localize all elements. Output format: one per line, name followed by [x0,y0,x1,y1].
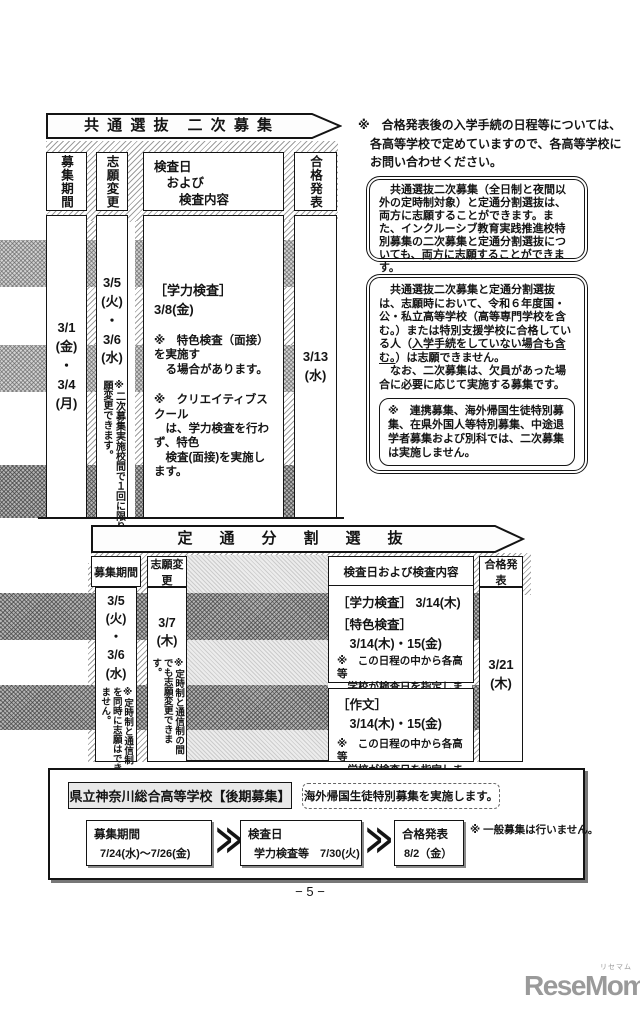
table1-header-recruit-period: 募集期間 [46,152,87,211]
document-page: 共 通 選 抜 二 次 募 集 募集期間 志願変更 検査日 および 検査内容 合… [0,0,640,1016]
flow-recruit-period-label: 募集期間 [94,826,204,842]
timeline-band-left [0,345,46,392]
note-box-dual-application-text: 共通選抜二次募集（全日制と夜間以外の定時制対象）と定通分割選抜は、両方に志願する… [379,184,575,275]
table2-middle-area [187,555,328,762]
kanagawa-sogo-box: 県立神奈川総合高等学校【後期募集】 海外帰国生徒特別募集を実施します。 募集期間… [48,768,585,880]
timeline-band-segment [135,465,143,518]
table2-application-change-note: ※定時制と通信制の間でも志願変更できます。 [150,658,184,758]
timeline-band-segment [284,240,294,287]
table1-bottom-line [38,517,344,519]
table1-header-result: 合格発表 [294,152,337,211]
table1-exam-note2: ※ クリエイティブスクール は、学力検査を行わず、特色 検査(面接)を実施します… [154,393,275,479]
flow-result-value: 8/2（金） [402,845,456,861]
table2-banner-title: 定 通 分 割 選 抜 [91,524,495,554]
table2-cell-exam1: ［学力検査］ 3/14(木) ［特色検査］ 3/14(木)・15(金) ※ この… [328,585,474,683]
note-contact-schools: ※ 合格発表後の入学手続の日程等については、 各高等学校で定めていますので、各高… [358,116,636,172]
table1-cell-result: 3/13 (水) [294,215,337,518]
timeline-band-segment [135,240,143,287]
table1-header-application-change: 志願変更 [96,152,128,211]
timeline-band-segment [137,685,147,730]
table1-header-exam: 検査日 および 検査内容 [143,152,284,211]
table1-cell-application-change: 3/5 (火) ・ 3/6 (水) ※二次募集実施校間で１回に限り志願変更できま… [96,215,128,518]
table2-result-date: 3/21 (木) [488,656,513,694]
flow-result-label: 合格発表 [402,826,456,842]
timeline-band-segment [284,345,294,392]
timeline-band-segment [87,240,96,287]
timeline-band-left [0,685,95,730]
table2-header-exam: 検査日および検査内容 [328,556,474,587]
table1-header-result-label: 合格発表 [306,155,325,209]
table2-header-result: 合格発表 [479,556,523,587]
flow-exam-day-value: 学力検査等 7/30(火) [248,845,354,861]
table1-exam-note1: ※ 特色検査（面接）を実施す る場合があります。 [154,334,275,377]
table1-cell-exam: ［学力検査］ 3/8(金) ※ 特色検査（面接）を実施す る場合があります。 ※… [143,215,284,518]
table2-exam1-special: ［特色検査］ [337,614,465,633]
no-general-recruitment-note: ※ 一般募集は行いません。 [470,822,598,837]
table2-cell-result: 3/21 (木) [479,587,523,762]
timeline-band-segment [87,345,96,392]
timeline-band-segment [87,465,96,518]
note-box-no-secondary-text: ※ 連携募集、海外帰国生徒特別募集、在県外国人等特別募集、中途退学者募集および別… [388,404,566,460]
overseas-returnee-note: 海外帰国生徒特別募集を実施します。 [302,783,500,809]
table1-header-recruit-period-label: 募集期間 [57,155,76,209]
table2-cell-recruit-period: 3/5 (火) ・ 3/6 (水) ※定時制と通信制を同時に志願はできません。 [95,587,137,762]
table1-recruit-period-dates: 3/1 (金) ・ 3/4 (月) [56,319,78,413]
table2-recruit-period-dates: 3/5 (火) ・ 3/6 (水) [96,592,136,683]
flow-exam-day-label: 検査日 [248,826,354,842]
note-box-dual-application: 共通選抜二次募集（全日制と夜間以外の定時制対象）と定通分割選抜は、両方に志願する… [366,176,588,262]
table2-header-recruit-period: 募集期間 [91,556,141,587]
page-number: − 5 − [280,884,340,899]
table2-cell-exam2: ［作文］ 3/14(木)・15(金) ※ この日程の中から各高等 学校が検査日を… [328,688,474,762]
table2-exam1-special-dates: 3/14(木)・15(金) [337,633,465,652]
table2-exam2-essay: ［作文］ [337,694,465,713]
table2-header-application-change: 志願変更 [147,556,187,587]
table2-header-exam-label: 検査日および検査内容 [344,564,459,580]
timeline-band-left [0,593,95,640]
eligibility-text-post: ）は志願できません。 なお、二次募集は、欠員があった場合に必要に応じて実施する募… [379,352,566,391]
timeline-band-segment [137,593,147,640]
table2-cell-application-change: 3/7 (木) ※定時制と通信制の間でも志願変更できます。 [147,587,187,762]
table1-application-change-dates: 3/5 (火) ・ 3/6 (水) [97,274,127,368]
note-box-eligibility-text: 共通選抜二次募集と定通分割選抜は、志願時において、令和６年度国・公・私立高等学校… [379,284,575,392]
flow-step-recruit-period: 募集期間 7/24(水)～7/26(金) [86,820,212,866]
note-box-eligibility: 共通選抜二次募集と定通分割選抜は、志願時において、令和６年度国・公・私立高等学校… [366,274,588,474]
table1-banner-title: 共 通 選 抜 二 次 募 集 [46,112,312,140]
table1-header-application-change-label: 志願変更 [103,155,122,209]
note-box-no-secondary: ※ 連携募集、海外帰国生徒特別募集、在県外国人等特別募集、中途退学者募集および別… [379,398,575,466]
timeline-band-middle [187,685,328,730]
flow-chevron-icon: ≫ [215,822,242,860]
table1-result-date: 3/13 (水) [303,348,328,386]
resemom-logo: リセマム ReseMom. [524,962,636,1010]
table2-application-change-date: 3/7 (木) [148,614,186,650]
timeline-band-middle [187,593,328,640]
table1-exam-date: ［学力検査］ 3/8(金) [154,280,275,318]
table2-header-application-change-label: 志願変更 [148,556,186,588]
timeline-band-left [0,240,46,287]
kanagawa-sogo-title: 県立神奈川総合高等学校【後期募集】 [68,782,292,809]
table2-exam2-dates: 3/14(木)・15(金) [337,713,465,732]
resemom-logo-text: ReseMom. [524,970,640,1002]
table2-header-result-label: 合格発表 [480,556,522,588]
flow-step-exam-day: 検査日 学力検査等 7/30(火) [240,820,362,866]
table2-recruit-period-note: ※定時制と通信制を同時に志願はできません。 [99,687,133,773]
timeline-band-segment [284,465,294,518]
table2-exam1-academic: ［学力検査］ 3/14(木) [337,592,465,611]
flow-step-result: 合格発表 8/2（金） [394,820,464,866]
flow-recruit-period-value: 7/24(水)～7/26(金) [94,845,204,861]
timeline-band-left [0,465,46,518]
timeline-band-segment [135,345,143,392]
table1-header-exam-label: 検査日 および 検査内容 [154,159,273,208]
flow-chevron-icon: ≫ [365,822,392,860]
table2-header-recruit-period-label: 募集期間 [94,564,138,580]
table1-cell-recruit-period: 3/1 (金) ・ 3/4 (月) [46,215,87,518]
